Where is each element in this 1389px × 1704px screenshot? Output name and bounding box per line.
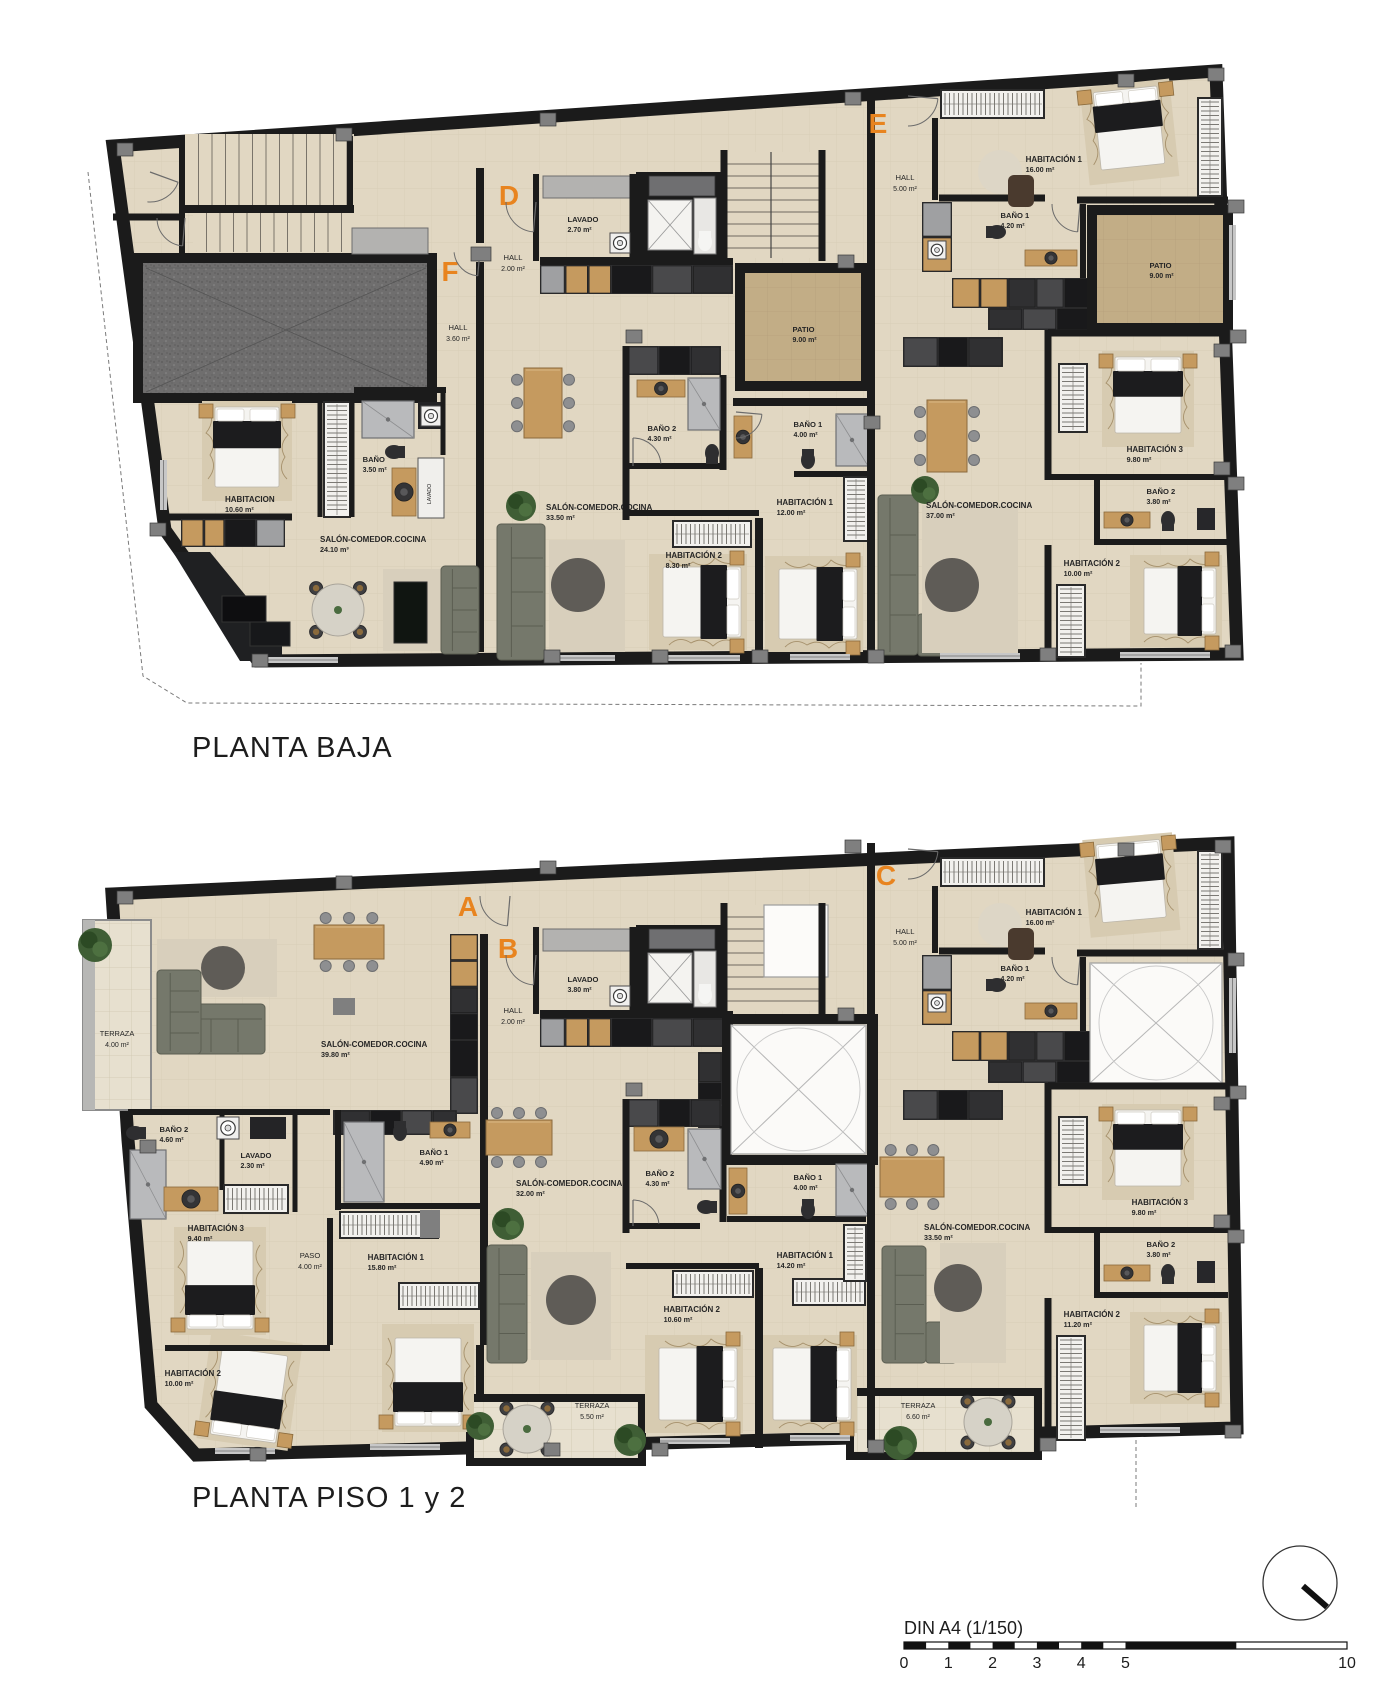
svg-text:HALL: HALL bbox=[504, 253, 523, 262]
svg-text:HABITACION: HABITACION bbox=[225, 495, 275, 504]
svg-text:HABITACIÓN 1: HABITACIÓN 1 bbox=[777, 498, 834, 507]
svg-text:HABITACIÓN 2: HABITACIÓN 2 bbox=[666, 551, 723, 560]
svg-text:HALL: HALL bbox=[449, 323, 468, 332]
svg-text:SALÓN-COMEDOR.COCINA: SALÓN-COMEDOR.COCINA bbox=[924, 1223, 1030, 1232]
svg-text:3.80 m²: 3.80 m² bbox=[568, 987, 593, 994]
svg-text:BAÑO 1: BAÑO 1 bbox=[794, 420, 823, 429]
svg-text:4.30 m²: 4.30 m² bbox=[646, 1181, 671, 1188]
svg-text:33.50 m²: 33.50 m² bbox=[546, 513, 575, 522]
svg-text:BAÑO 2: BAÑO 2 bbox=[1147, 487, 1176, 496]
svg-text:LAVADO: LAVADO bbox=[568, 975, 599, 984]
svg-text:5.00 m²: 5.00 m² bbox=[893, 186, 917, 193]
svg-text:HABITACIÓN 2: HABITACIÓN 2 bbox=[1064, 559, 1121, 568]
svg-text:PLANTA PISO 1 y 2: PLANTA PISO 1 y 2 bbox=[192, 1482, 466, 1514]
svg-text:BAÑO 2: BAÑO 2 bbox=[160, 1125, 189, 1134]
svg-text:PATIO: PATIO bbox=[1150, 261, 1172, 270]
svg-text:SALÓN-COMEDOR.COCINA: SALÓN-COMEDOR.COCINA bbox=[320, 535, 426, 544]
svg-text:HABITACIÓN 1: HABITACIÓN 1 bbox=[368, 1253, 425, 1262]
svg-text:10: 10 bbox=[1338, 1655, 1356, 1672]
svg-text:1: 1 bbox=[944, 1655, 953, 1672]
svg-text:D: D bbox=[499, 180, 519, 211]
svg-text:9.00 m²: 9.00 m² bbox=[1150, 273, 1175, 280]
svg-text:16.00 m²: 16.00 m² bbox=[1026, 918, 1055, 927]
svg-text:14.20 m²: 14.20 m² bbox=[777, 1261, 806, 1270]
svg-text:3.50 m²: 3.50 m² bbox=[363, 467, 388, 474]
svg-text:4: 4 bbox=[1077, 1655, 1086, 1672]
svg-text:5: 5 bbox=[1121, 1655, 1130, 1672]
svg-text:9.00 m²: 9.00 m² bbox=[793, 337, 818, 344]
svg-text:SALÓN-COMEDOR.COCINA: SALÓN-COMEDOR.COCINA bbox=[516, 1179, 622, 1188]
svg-text:2: 2 bbox=[988, 1655, 997, 1672]
svg-text:HABITACIÓN 3: HABITACIÓN 3 bbox=[1127, 445, 1184, 454]
svg-text:HABITACIÓN 1: HABITACIÓN 1 bbox=[777, 1251, 834, 1260]
svg-text:LAVADO: LAVADO bbox=[427, 484, 433, 504]
svg-text:HABITACIÓN 1: HABITACIÓN 1 bbox=[1026, 155, 1083, 164]
svg-text:12.00 m²: 12.00 m² bbox=[777, 508, 806, 517]
svg-text:BAÑO 2: BAÑO 2 bbox=[1147, 1240, 1176, 1249]
svg-text:PLANTA BAJA: PLANTA BAJA bbox=[192, 732, 393, 764]
svg-text:4.30 m²: 4.30 m² bbox=[648, 436, 673, 443]
svg-text:LAVADO: LAVADO bbox=[241, 1151, 272, 1160]
svg-text:6.60 m²: 6.60 m² bbox=[906, 1414, 930, 1421]
svg-text:3: 3 bbox=[1032, 1655, 1041, 1672]
svg-text:10.00 m²: 10.00 m² bbox=[165, 1379, 194, 1388]
svg-text:SALÓN-COMEDOR.COCINA: SALÓN-COMEDOR.COCINA bbox=[321, 1040, 427, 1049]
svg-text:4.00 m²: 4.00 m² bbox=[794, 1185, 819, 1192]
svg-text:SALÓN-COMEDOR.COCINA: SALÓN-COMEDOR.COCINA bbox=[926, 501, 1032, 510]
svg-text:11.20 m²: 11.20 m² bbox=[1064, 1320, 1093, 1329]
svg-text:16.00 m²: 16.00 m² bbox=[1026, 165, 1055, 174]
svg-text:BAÑO 1: BAÑO 1 bbox=[420, 1148, 449, 1157]
svg-text:24.10 m³: 24.10 m³ bbox=[320, 545, 349, 554]
svg-text:TERRAZA: TERRAZA bbox=[575, 1401, 610, 1410]
svg-text:B: B bbox=[498, 933, 518, 964]
svg-text:4.00 m²: 4.00 m² bbox=[298, 1264, 322, 1271]
svg-text:C: C bbox=[876, 860, 896, 891]
svg-text:4.90 m²: 4.90 m² bbox=[420, 1160, 445, 1167]
svg-text:HALL: HALL bbox=[896, 927, 915, 936]
svg-text:37.00 m²: 37.00 m² bbox=[926, 511, 955, 520]
svg-text:9.80 m²: 9.80 m² bbox=[1132, 1208, 1157, 1217]
svg-text:HABITACIÓN 2: HABITACIÓN 2 bbox=[1064, 1310, 1121, 1319]
svg-text:HABITACIÓN 2: HABITACIÓN 2 bbox=[664, 1305, 721, 1314]
svg-text:PATIO: PATIO bbox=[793, 325, 815, 334]
svg-text:3.60 m²: 3.60 m² bbox=[446, 336, 470, 343]
svg-text:2.00 m²: 2.00 m² bbox=[501, 1019, 525, 1026]
svg-text:HABITACIÓN 2: HABITACIÓN 2 bbox=[165, 1369, 222, 1378]
svg-text:BAÑO: BAÑO bbox=[363, 455, 385, 464]
svg-text:E: E bbox=[869, 108, 888, 139]
svg-text:33.50 m²: 33.50 m² bbox=[924, 1233, 953, 1242]
svg-text:5.00 m²: 5.00 m² bbox=[893, 940, 917, 947]
svg-text:39.80 m²: 39.80 m² bbox=[321, 1050, 350, 1059]
svg-text:4.00 m²: 4.00 m² bbox=[105, 1042, 129, 1049]
svg-text:10.60 m²: 10.60 m² bbox=[225, 505, 254, 514]
svg-text:PASO: PASO bbox=[300, 1251, 321, 1260]
svg-text:HALL: HALL bbox=[504, 1006, 523, 1015]
svg-text:TERRAZA: TERRAZA bbox=[901, 1401, 936, 1410]
svg-text:4.60 m²: 4.60 m² bbox=[160, 1137, 185, 1144]
svg-text:BAÑO 1: BAÑO 1 bbox=[1001, 964, 1030, 973]
svg-text:9.40 m²: 9.40 m² bbox=[188, 1234, 213, 1243]
svg-text:5.50 m²: 5.50 m² bbox=[580, 1414, 604, 1421]
svg-text:HALL: HALL bbox=[896, 173, 915, 182]
svg-text:DIN A4 (1/150): DIN A4 (1/150) bbox=[904, 1618, 1023, 1638]
svg-text:4.20 m²: 4.20 m² bbox=[1001, 223, 1026, 230]
svg-text:3.80 m²: 3.80 m² bbox=[1147, 499, 1172, 506]
svg-text:BAÑO 1: BAÑO 1 bbox=[794, 1173, 823, 1182]
svg-text:4.00 m²: 4.00 m² bbox=[794, 432, 819, 439]
svg-text:10.00 m²: 10.00 m² bbox=[1064, 569, 1093, 578]
svg-text:2.00 m²: 2.00 m² bbox=[501, 266, 525, 273]
svg-text:32.00 m²: 32.00 m² bbox=[516, 1189, 545, 1198]
svg-text:3.80 m²: 3.80 m² bbox=[1147, 1252, 1172, 1259]
svg-text:10.60 m²: 10.60 m² bbox=[664, 1315, 693, 1324]
svg-text:LAVADO: LAVADO bbox=[568, 215, 599, 224]
svg-text:BAÑO 2: BAÑO 2 bbox=[646, 1169, 675, 1178]
svg-text:A: A bbox=[458, 891, 478, 922]
svg-text:2.70 m²: 2.70 m² bbox=[568, 227, 593, 234]
svg-text:BAÑO 2: BAÑO 2 bbox=[648, 424, 677, 433]
svg-text:0: 0 bbox=[900, 1655, 909, 1672]
svg-text:4.20 m²: 4.20 m² bbox=[1001, 976, 1026, 983]
svg-text:HABITACIÓN 1: HABITACIÓN 1 bbox=[1026, 908, 1083, 917]
svg-text:HABITACIÓN 3: HABITACIÓN 3 bbox=[1132, 1198, 1189, 1207]
svg-text:9.80 m²: 9.80 m² bbox=[1127, 455, 1152, 464]
svg-text:BAÑO 1: BAÑO 1 bbox=[1001, 211, 1030, 220]
svg-text:15.80 m²: 15.80 m² bbox=[368, 1263, 397, 1272]
svg-text:2.30 m²: 2.30 m² bbox=[241, 1163, 266, 1170]
svg-text:TERRAZA: TERRAZA bbox=[100, 1029, 135, 1038]
svg-text:8.30 m²: 8.30 m² bbox=[666, 561, 691, 570]
svg-text:HABITACIÓN 3: HABITACIÓN 3 bbox=[188, 1224, 245, 1233]
